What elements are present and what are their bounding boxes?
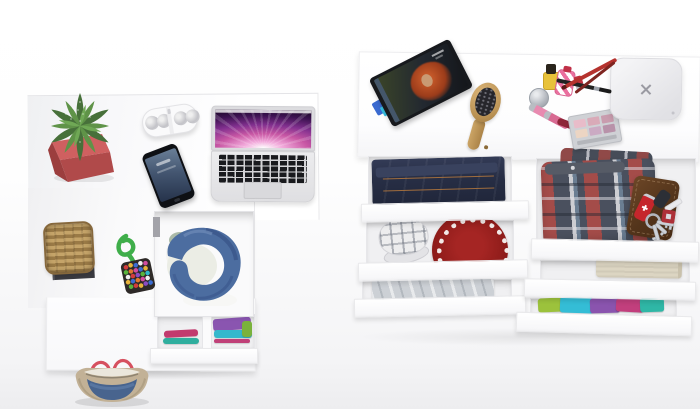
folded-garment bbox=[214, 339, 250, 343]
eyeshadow-pan bbox=[587, 116, 601, 126]
laptop-wallpaper bbox=[215, 110, 311, 149]
tablet-screen bbox=[374, 43, 469, 123]
folded-garment bbox=[163, 338, 199, 344]
eyeshadow-pan bbox=[573, 119, 587, 129]
laptop-base bbox=[211, 151, 315, 203]
handbag bbox=[68, 348, 156, 408]
wireless-charger bbox=[609, 57, 682, 120]
folded-jeans bbox=[371, 156, 505, 205]
furniture-render-scene bbox=[0, 0, 700, 409]
drawer-front bbox=[531, 238, 699, 263]
jeans-stitching bbox=[383, 188, 495, 192]
cactus-plant bbox=[38, 90, 124, 182]
phone-notification bbox=[157, 165, 176, 174]
phone-lockscreen-time bbox=[156, 158, 171, 166]
drawer-front bbox=[150, 348, 258, 364]
drawer-divider bbox=[202, 315, 212, 352]
laptop-keyboard bbox=[219, 155, 307, 184]
laptop-screen bbox=[211, 106, 315, 152]
handbag-graphic bbox=[68, 348, 156, 408]
x-logo-icon bbox=[639, 82, 652, 95]
tablet-body bbox=[369, 39, 474, 128]
drawer-front bbox=[354, 295, 526, 318]
speaker-button bbox=[167, 109, 171, 114]
desk-open-drawer bbox=[154, 211, 254, 317]
brush-handle-hole bbox=[484, 145, 489, 150]
device-led bbox=[672, 111, 675, 114]
laptop-trackpad bbox=[244, 182, 282, 199]
perfume-cap bbox=[563, 66, 572, 73]
phone-home-button bbox=[174, 198, 181, 203]
eyeshadow-pan bbox=[589, 126, 603, 136]
keychain-inset bbox=[666, 214, 672, 220]
folded-garment bbox=[242, 321, 252, 337]
laptop bbox=[211, 106, 314, 201]
drawer-front bbox=[361, 200, 529, 223]
tablet bbox=[366, 52, 470, 124]
tablet-ui-bar bbox=[374, 78, 400, 123]
folded-garment bbox=[164, 329, 198, 338]
eyeshadow-pan bbox=[575, 128, 589, 138]
shorts-waistband bbox=[545, 161, 625, 175]
eyeshadow-pan bbox=[602, 123, 616, 133]
cactus-graphic bbox=[38, 90, 124, 182]
desk-lower-drawer bbox=[157, 314, 255, 351]
bead-toy bbox=[106, 230, 160, 294]
drawer-front bbox=[358, 259, 528, 282]
drawer-front bbox=[524, 278, 696, 301]
nail-polish-cap bbox=[546, 64, 556, 74]
wicker-basket bbox=[43, 221, 96, 276]
laptop-menubar bbox=[215, 110, 311, 114]
shorts-button bbox=[571, 166, 575, 170]
denim-jacket-graphic bbox=[160, 222, 246, 306]
red-keychain bbox=[661, 209, 676, 224]
bead-toy-graphic bbox=[106, 230, 160, 294]
